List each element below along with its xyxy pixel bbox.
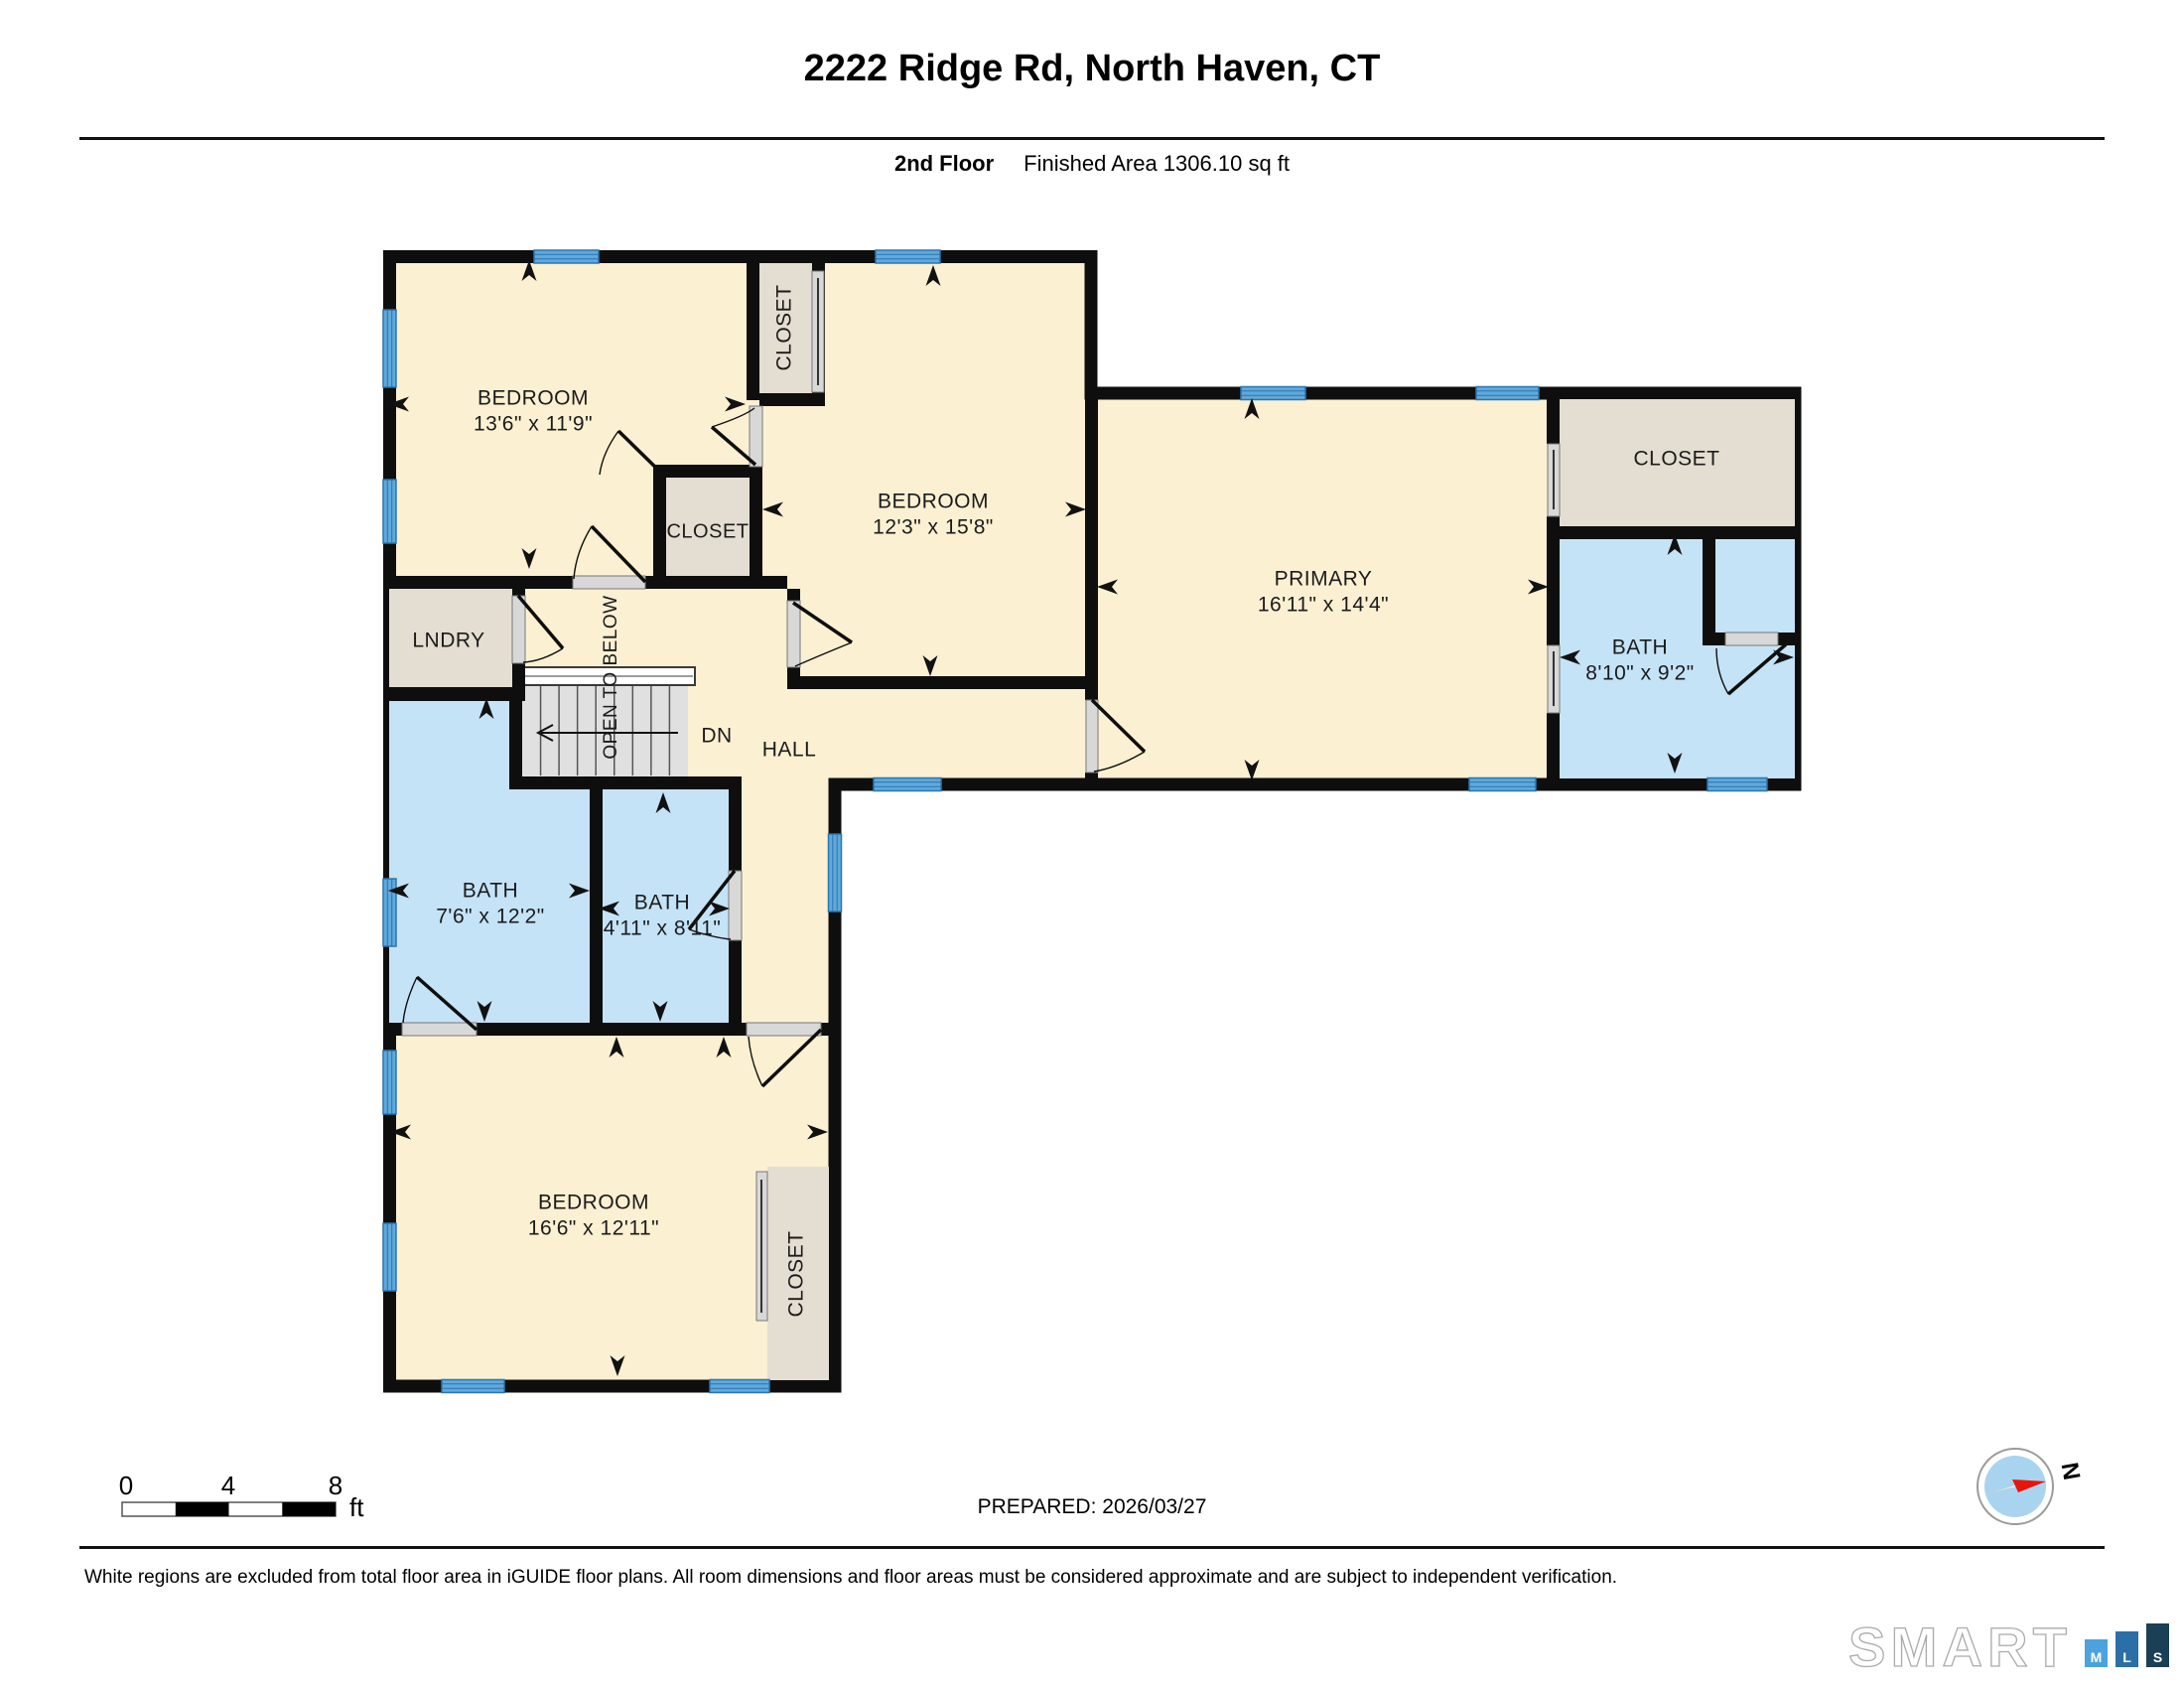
compass-north-label: N <box>2056 1461 2086 1482</box>
stairs-dn-label: DN <box>701 725 732 748</box>
primary-bath-label: BATH <box>1612 636 1668 659</box>
disclaimer-text: White regions are excluded from total fl… <box>84 1567 1971 1589</box>
bath-a-label: BATH <box>463 880 518 903</box>
scale-tick-0: 0 <box>119 1471 133 1500</box>
primary-label: PRIMARY <box>1275 568 1373 591</box>
logo-m-letter: M <box>2091 1649 2103 1665</box>
bath-b-label: BATH <box>634 892 690 914</box>
bedroom1-label: BEDROOM <box>478 387 589 410</box>
closet-mid-label: CLOSET <box>666 520 749 542</box>
bath-a-dims: 7'6" x 12'2" <box>436 906 545 928</box>
scale-tick-8: 8 <box>329 1471 342 1500</box>
bath-b-dims: 4'11" x 8'11" <box>604 917 722 940</box>
closet-top-label: CLOSET <box>773 284 796 370</box>
smartmls-logo: SMART M L S <box>1848 1616 2169 1678</box>
laundry-label: LNDRY <box>412 630 484 652</box>
open-to-below-label: OPEN TO BELOW <box>601 595 621 759</box>
closet-primary-label: CLOSET <box>1633 448 1719 471</box>
bedroom2-label: BEDROOM <box>878 491 989 513</box>
footer-divider <box>79 1546 2105 1549</box>
bedroom1-dims: 13'6" x 11'9" <box>474 413 593 436</box>
bedroom3-dims: 16'6" x 12'11" <box>528 1217 659 1240</box>
bedroom2-dims: 12'3" x 15'8" <box>873 516 994 539</box>
bedroom3-label: BEDROOM <box>538 1192 649 1214</box>
hall-label: HALL <box>762 739 817 762</box>
logo-s-letter: S <box>2153 1649 2162 1665</box>
scale-tick-4: 4 <box>221 1471 235 1500</box>
closet-bedroom3-label: CLOSET <box>785 1230 808 1317</box>
primary-dims: 16'11" x 14'4" <box>1258 594 1389 617</box>
primary-bath-dims: 8'10" x 9'2" <box>1585 662 1695 685</box>
scale-unit-label: ft <box>349 1492 364 1522</box>
floor-plan: BEDROOM 13'6" x 11'9" BEDROOM 12'3" x 15… <box>0 0 2184 1688</box>
smartmls-brand-text: SMART <box>1848 1616 2075 1678</box>
prepared-date: PREPARED: 2026/03/27 <box>893 1495 1291 1519</box>
compass-icon: N <box>1978 1449 2085 1524</box>
logo-l-letter: L <box>2122 1649 2131 1665</box>
scale-bar: 0 4 8 ft <box>119 1471 364 1522</box>
